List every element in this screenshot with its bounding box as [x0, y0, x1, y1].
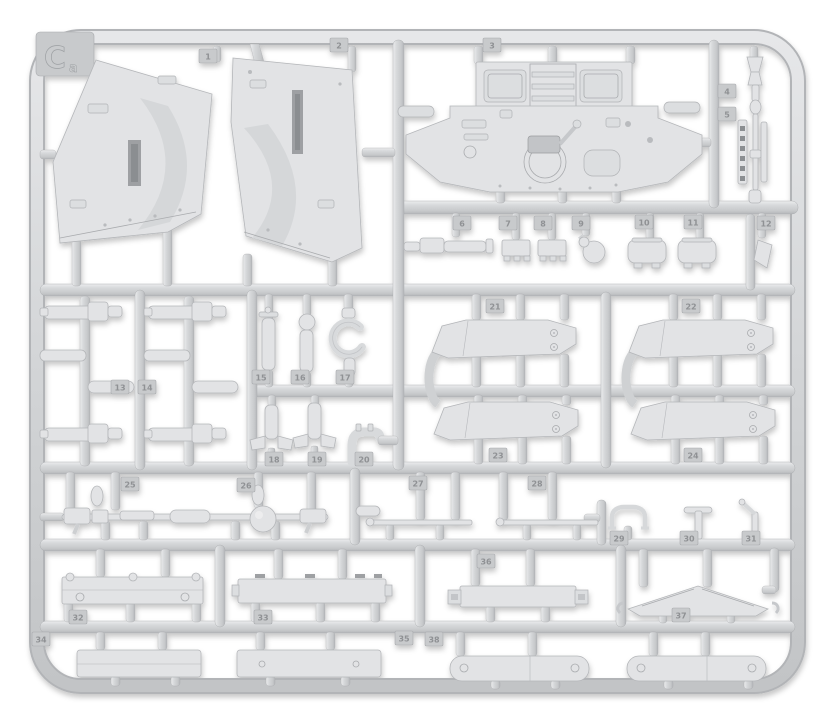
part-number-tab-3: 3 — [483, 38, 501, 52]
part-37-roof-panel — [618, 586, 778, 616]
svg-text:19: 19 — [311, 455, 323, 464]
svg-text:30: 30 — [683, 534, 695, 543]
part-7-bracket — [502, 240, 530, 261]
part-number-tab-1: 1 — [199, 49, 217, 63]
part-17-clamp-ring — [333, 308, 362, 376]
svg-text:25: 25 — [124, 480, 136, 489]
part-11-stowage-box — [678, 238, 716, 268]
part-number-tab-25: 25 — [121, 477, 139, 491]
svg-text:7: 7 — [505, 219, 511, 228]
part-number-tab-9: 9 — [572, 216, 590, 230]
sprue-letter-sub: a — [69, 61, 78, 76]
part-39-rounded-plate — [627, 656, 766, 681]
part-6-stepped-cylinder — [404, 238, 493, 253]
svg-text:22: 22 — [685, 302, 696, 311]
part-9-disc-lever — [579, 236, 605, 263]
svg-text:12: 12 — [760, 219, 771, 228]
sprue-frame-and-parts: C a — [32, 32, 798, 689]
svg-text:32: 32 — [72, 613, 83, 622]
svg-text:38: 38 — [428, 635, 440, 644]
part-number-tab-17: 17 — [336, 370, 354, 384]
svg-text:29: 29 — [613, 534, 625, 543]
svg-text:23: 23 — [492, 451, 503, 460]
svg-text:10: 10 — [638, 218, 650, 227]
part-35-plate — [237, 650, 381, 677]
svg-text:16: 16 — [294, 373, 306, 382]
part-15-cylinder — [259, 307, 278, 370]
part-28-steering-rod — [496, 518, 598, 526]
svg-text:9: 9 — [578, 219, 584, 228]
part-number-tab-12: 12 — [757, 216, 775, 230]
part-number-tab-18: 18 — [265, 452, 283, 466]
part-number-tab-16: 16 — [291, 370, 309, 384]
svg-text:6: 6 — [459, 219, 465, 228]
svg-text:5: 5 — [724, 110, 730, 119]
part-number-tab-33: 33 — [254, 610, 272, 624]
part-number-tab-37: 37 — [672, 608, 690, 622]
svg-text:8: 8 — [540, 219, 546, 228]
svg-text:17: 17 — [339, 373, 350, 382]
part-24-fender — [631, 402, 775, 440]
svg-text:2: 2 — [336, 41, 342, 50]
part-number-tab-26: 26 — [237, 478, 255, 492]
svg-text:33: 33 — [257, 613, 268, 622]
svg-text:26: 26 — [240, 481, 252, 490]
part-14-cylinder-assembly — [144, 296, 238, 466]
part-number-tab-24: 24 — [684, 448, 702, 462]
part-number-tab-5: 5 — [718, 107, 736, 121]
part-32-side-plate — [62, 573, 203, 604]
svg-text:37: 37 — [675, 611, 686, 620]
part-number-tab-38: 38 — [425, 632, 443, 646]
part-number-tab-11: 11 — [684, 215, 702, 229]
photo-background: C a — [0, 0, 835, 720]
svg-text:15: 15 — [255, 373, 267, 382]
part-number-tab-31: 31 — [742, 531, 760, 545]
part-number-tab-27: 27 — [409, 476, 427, 490]
part-number-tab-19: 19 — [308, 452, 326, 466]
part-number-tab-23: 23 — [489, 448, 507, 462]
part-number-tab-21: 21 — [486, 299, 504, 313]
part-38-rounded-plate — [450, 656, 589, 681]
sprue-corner-label: C a — [36, 32, 94, 76]
part-number-tab-8: 8 — [534, 216, 552, 230]
svg-text:27: 27 — [412, 479, 423, 488]
part-number-tab-22: 22 — [682, 299, 700, 313]
part-number-tab-13: 13 — [111, 380, 129, 394]
part-23-fender — [434, 402, 578, 440]
svg-text:11: 11 — [687, 218, 699, 227]
part-10-stowage-box — [628, 238, 666, 268]
svg-text:3: 3 — [489, 41, 495, 50]
part-33-side-plate — [232, 574, 392, 603]
svg-text:31: 31 — [745, 534, 757, 543]
svg-text:18: 18 — [268, 455, 280, 464]
svg-text:28: 28 — [531, 479, 543, 488]
part-number-tab-35: 35 — [395, 631, 413, 645]
svg-text:13: 13 — [114, 383, 125, 392]
svg-text:36: 36 — [480, 557, 492, 566]
part-36-bracket-plate — [448, 586, 588, 607]
part-number-tab-36: 36 — [477, 554, 495, 568]
svg-text:24: 24 — [687, 451, 699, 460]
sprue-letter: C — [44, 41, 66, 76]
part-number-tab-14: 14 — [138, 380, 156, 394]
svg-text:14: 14 — [141, 383, 153, 392]
part-number-tab-28: 28 — [528, 476, 546, 490]
part-number-tab-10: 10 — [635, 215, 653, 229]
part-number-tab-32: 32 — [69, 610, 87, 624]
svg-text:20: 20 — [358, 455, 370, 464]
svg-text:1: 1 — [205, 52, 211, 61]
part-34-plate — [77, 650, 201, 677]
part-16-cylinder — [299, 314, 315, 372]
svg-text:35: 35 — [398, 634, 410, 643]
part-number-tab-15: 15 — [252, 370, 270, 384]
part-3-hull-roof — [398, 62, 702, 192]
sprue-photo: C a — [0, 0, 835, 720]
part-number-tab-4: 4 — [718, 84, 736, 98]
part-22-fender — [629, 320, 773, 358]
part-number-tab-34: 34 — [32, 632, 50, 646]
part-8-bracket — [538, 240, 566, 261]
part-number-tab-7: 7 — [499, 216, 517, 230]
part-12-angled-bracket — [754, 240, 772, 268]
part-1-hull-side-panel — [53, 60, 212, 243]
part-29-wire-handle — [608, 507, 649, 528]
part-number-tab-20: 20 — [355, 452, 373, 466]
part-number-tab-2: 2 — [330, 38, 348, 52]
svg-text:34: 34 — [35, 635, 47, 644]
part-number-tab-29: 29 — [610, 531, 628, 545]
svg-text:21: 21 — [489, 302, 501, 311]
part-2-hull-side-panel — [231, 58, 362, 262]
part-number-tab-6: 6 — [453, 216, 471, 230]
part-number-tab-30: 30 — [680, 531, 698, 545]
part-21-fender — [432, 320, 576, 358]
svg-text:4: 4 — [724, 87, 730, 96]
